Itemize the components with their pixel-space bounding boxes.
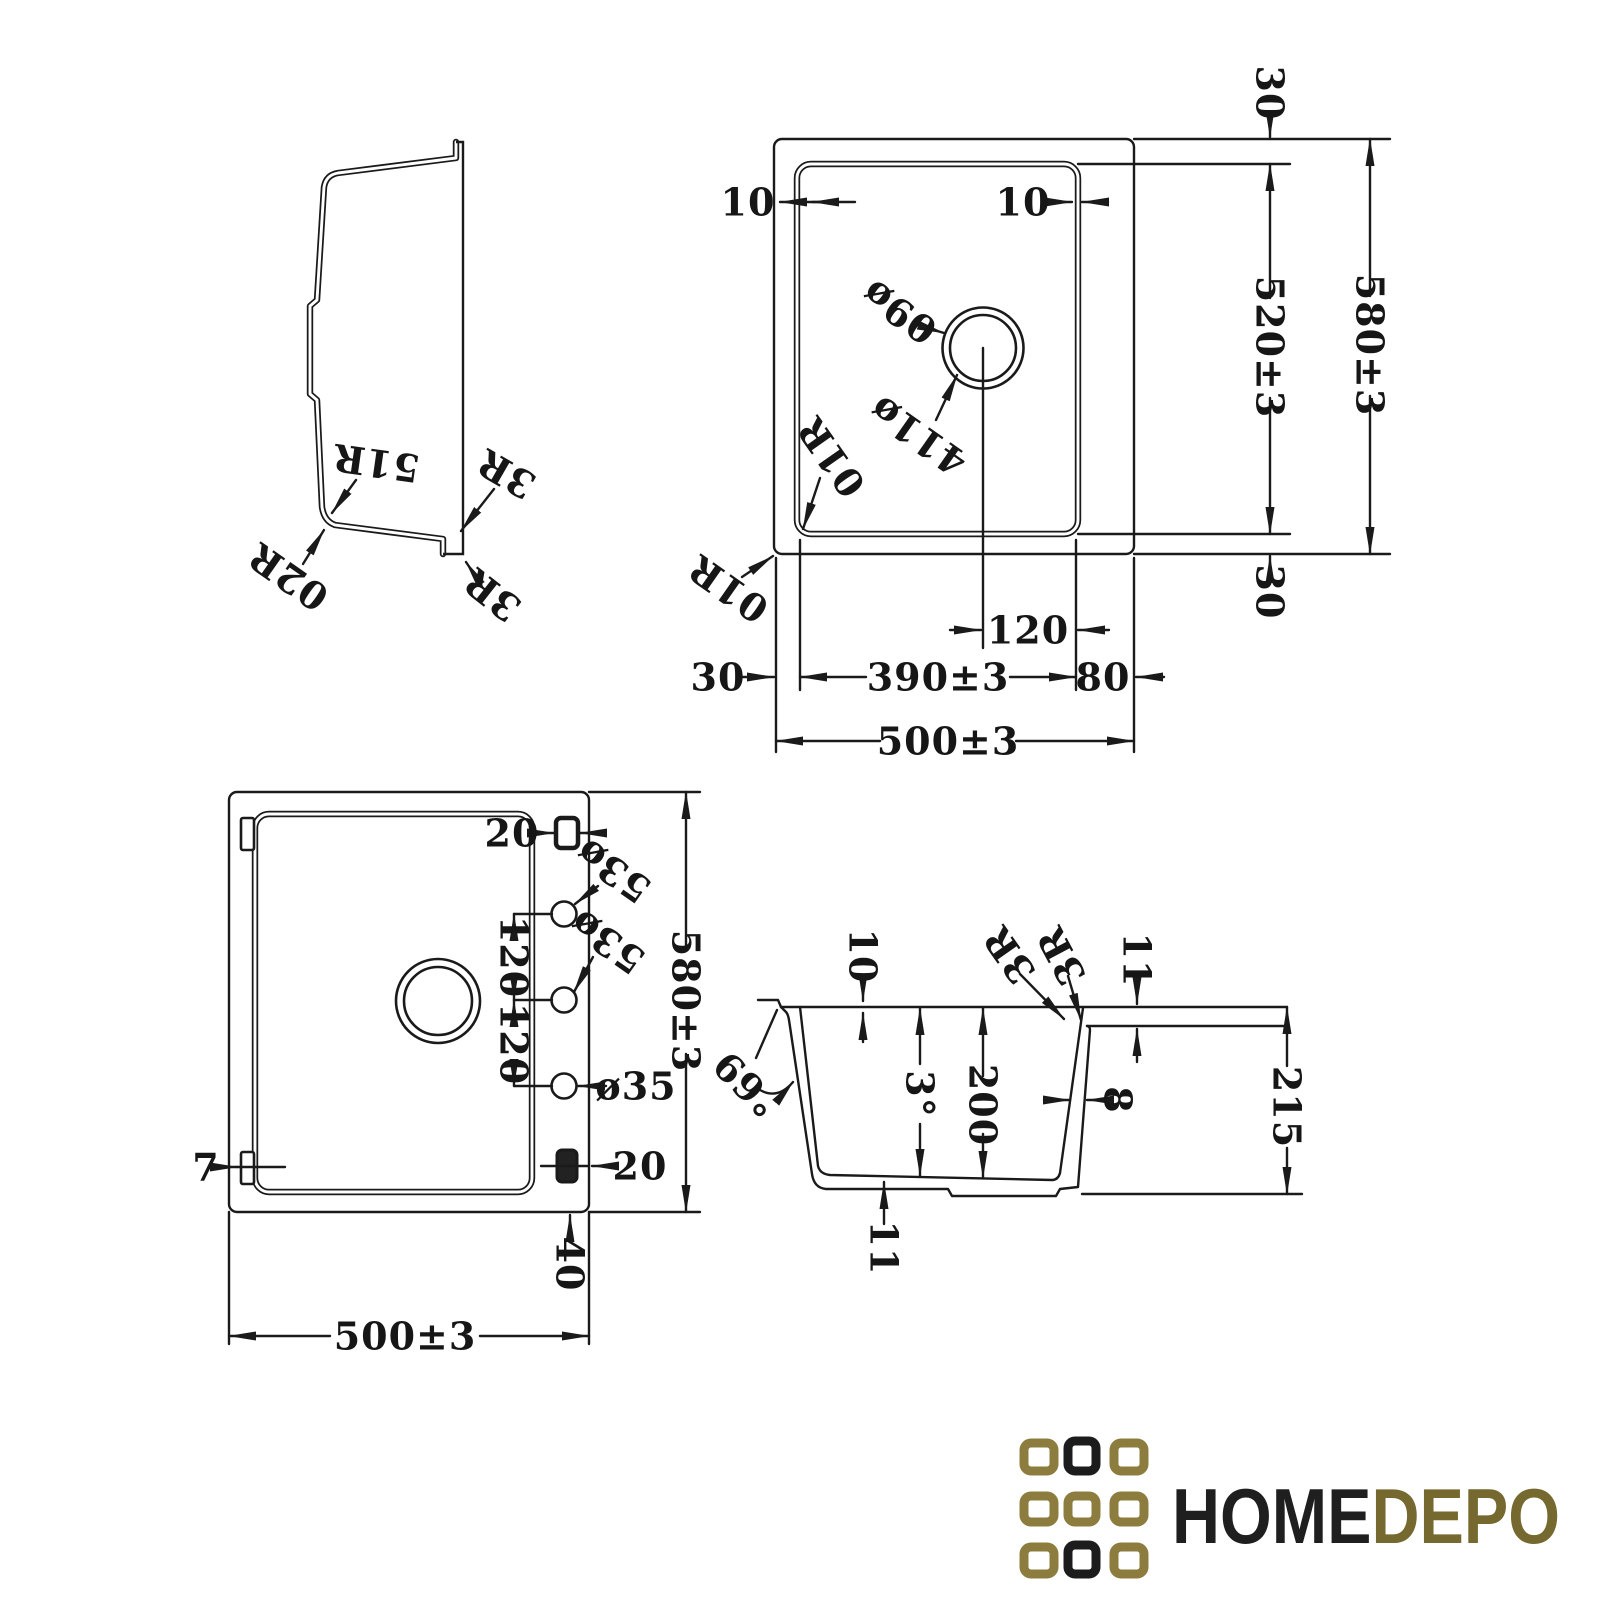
label-drain-offset: 120: [987, 608, 1069, 653]
leader-r15: [332, 480, 356, 513]
leader-r3-top: [461, 489, 494, 531]
label-outer-width: 500±3: [877, 719, 1020, 764]
bottom-body-rect: [255, 814, 532, 1192]
profile-contour-inner: [310, 142, 456, 554]
top-view: 10 10 09ø 411ø 01R 01R 30 520±3 580±3 30…: [679, 66, 1392, 764]
bottom-view: 20 53ø 53ø ø35 120 120 580±3 7 20 40 5: [192, 792, 708, 1359]
label-drain-flange-dia: 411ø: [861, 386, 976, 485]
drain-hole-circle-bottom: [404, 967, 472, 1035]
label-corner-outer: 01R: [679, 545, 776, 632]
label-bottom-slope: 3°: [898, 1070, 943, 1117]
leader-r20: [303, 530, 324, 564]
label-overall-depth: 215: [1265, 1066, 1310, 1148]
logo-square: [1114, 1443, 1144, 1471]
label-rim-thickness: 11: [1115, 933, 1160, 988]
label-r15: 51R: [330, 435, 423, 492]
leader-corner-outer: [742, 556, 773, 577]
label-edge-left: 10: [721, 180, 776, 225]
technical-drawing-page: 51R 02R 3R 3R 10 10 09ø 411ø 01R: [0, 0, 1600, 1600]
label-drain-dia: 09ø: [853, 270, 945, 353]
sink-dimension-drawing: 51R 02R 3R 3R 10 10 09ø 411ø 01R: [0, 0, 1600, 1600]
label-pitch-2: 120: [492, 1003, 537, 1085]
label-slot-offset: 40: [548, 1237, 593, 1292]
label-flange-thickness: 7: [192, 1145, 219, 1190]
label-inner-width: 390±3: [867, 655, 1010, 700]
leader-corner-inner: [803, 478, 820, 529]
tap-hole-3: [552, 1074, 577, 1099]
logo-square: [1024, 1496, 1054, 1522]
logo-text-depo: DEPO: [1372, 1472, 1560, 1560]
logo-square: [1068, 1545, 1096, 1574]
label-rim-lip: 10: [841, 929, 886, 984]
label-bv-outer-height: 580±3: [664, 930, 709, 1073]
label-margin-bottom: 30: [1248, 565, 1293, 620]
tap-hole-2: [552, 988, 577, 1013]
logo-text-home: HOME: [1172, 1472, 1372, 1560]
profile-contour: [310, 142, 456, 554]
logo-square: [1024, 1443, 1054, 1471]
clip-tab-top: [241, 818, 254, 850]
label-outer-height: 580±3: [1348, 274, 1393, 417]
leader-wall-angle-line: [756, 1010, 777, 1058]
label-margin-left: 30: [691, 655, 746, 700]
label-slot-top: 20: [485, 811, 540, 856]
label-wall-thickness: 8: [1096, 1086, 1141, 1113]
side-profile-view: 51R 02R 3R 3R: [239, 142, 543, 631]
label-bottom-thickness: 11: [862, 1221, 907, 1276]
profile-rim-plane-line: [443, 142, 463, 554]
label-inner-height: 520±3: [1248, 276, 1293, 419]
section-lip-top: [758, 1000, 781, 1007]
logo-wordmark: HOMEDEPO: [1172, 1472, 1560, 1560]
mount-slot-top: [556, 818, 578, 848]
leader-drain-flange-dia: [936, 375, 957, 420]
logo-square: [1024, 1547, 1054, 1574]
label-r20: 02R: [239, 533, 336, 620]
label-bv-outer-width: 500±3: [334, 1314, 477, 1359]
label-r3-top: 3R: [469, 440, 543, 509]
label-deck-width: 80: [1076, 655, 1131, 700]
label-edge-right: 10: [996, 180, 1051, 225]
bottom-body-rect-inner: [255, 814, 532, 1192]
logo-square: [1114, 1547, 1144, 1574]
section-view: 10 3R 3R 11 °69 3° 200 8 215 11: [704, 918, 1310, 1276]
logo-square: [1068, 1496, 1096, 1522]
label-margin-top: 30: [1248, 66, 1293, 121]
logo-square: [1068, 1441, 1096, 1471]
label-pitch-1: 120: [492, 916, 537, 998]
label-wall-angle: °69: [704, 1042, 789, 1127]
label-slot-bottom: 20: [613, 1144, 668, 1189]
brand-logo: HOMEDEPO: [1024, 1441, 1560, 1574]
label-r3-bottom: 3R: [454, 559, 529, 631]
logo-square: [1114, 1496, 1144, 1522]
label-bowl-depth: 200: [961, 1064, 1006, 1146]
logo-grid: [1024, 1441, 1144, 1574]
label-section-r3-b: 3R: [1027, 919, 1095, 993]
